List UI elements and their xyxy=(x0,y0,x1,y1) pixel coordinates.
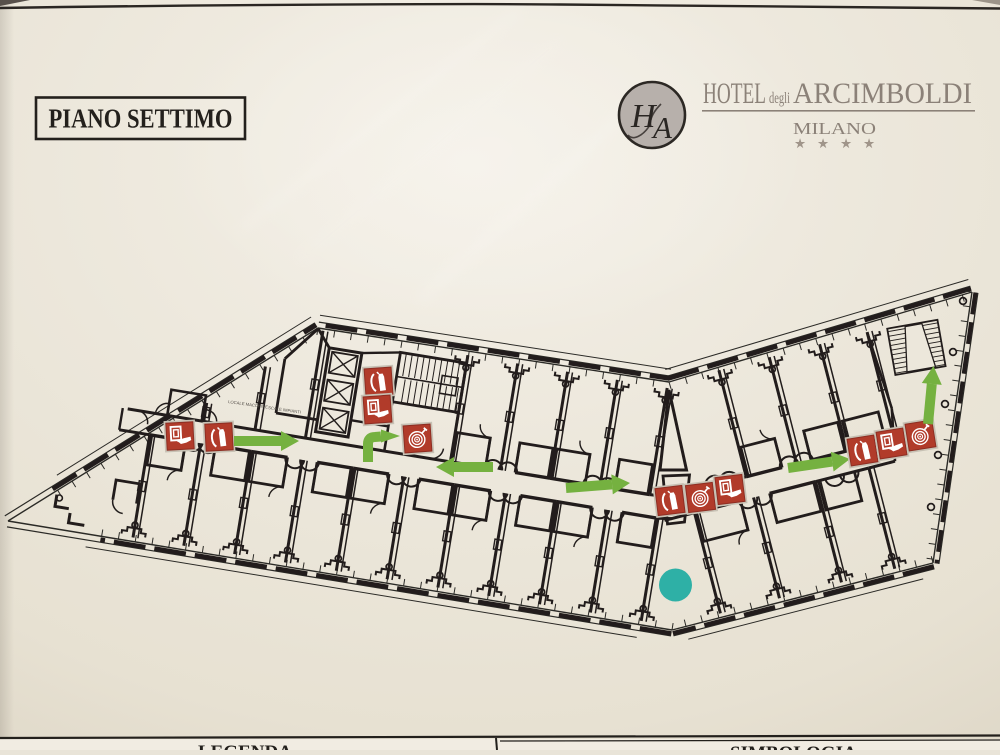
svg-text:★: ★ xyxy=(840,136,852,151)
svg-text:SIMBOLOGIA: SIMBOLOGIA xyxy=(730,743,857,750)
svg-text:LEGENDA: LEGENDA xyxy=(198,742,292,750)
svg-text:★: ★ xyxy=(863,136,875,151)
svg-text:degli: degli xyxy=(769,90,790,107)
svg-text:★: ★ xyxy=(794,136,806,151)
svg-text:A: A xyxy=(651,110,673,145)
svg-text:ARCIMBOLDI: ARCIMBOLDI xyxy=(793,77,972,110)
svg-text:PIANO SETTIMO: PIANO SETTIMO xyxy=(49,104,233,134)
svg-text:HOTEL: HOTEL xyxy=(703,77,766,110)
svg-text:★: ★ xyxy=(817,136,829,151)
